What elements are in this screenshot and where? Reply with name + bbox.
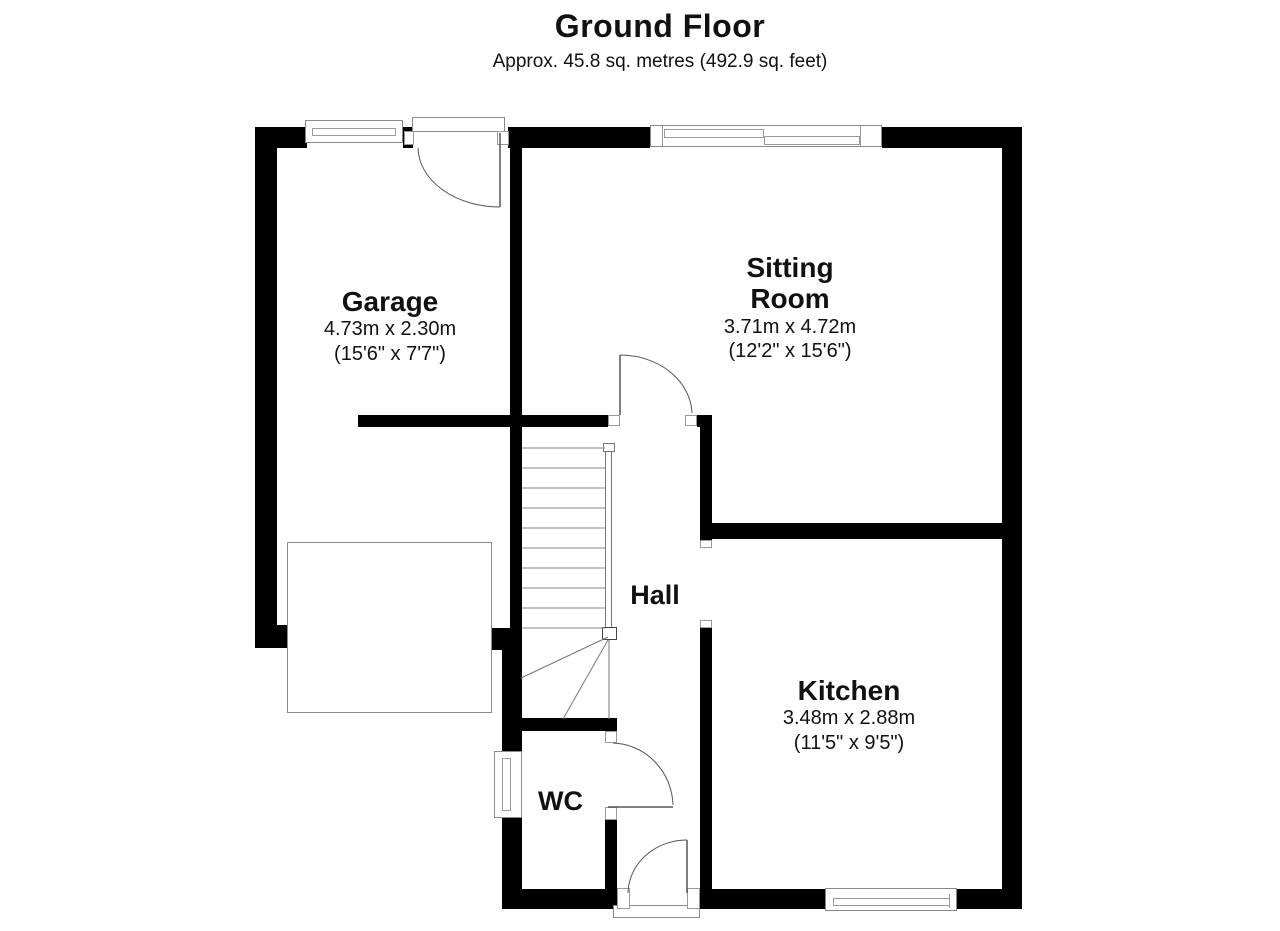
stair-treads	[522, 448, 605, 628]
door-arc-wc	[613, 743, 673, 805]
sitting-room-name-line2: Room	[690, 283, 890, 314]
floorplan-canvas: Ground Floor Approx. 45.8 sq. metres (49…	[0, 0, 1280, 931]
kitchen-name: Kitchen	[749, 675, 949, 706]
door-arc-front	[628, 840, 687, 893]
door-arc-garage-entry	[418, 148, 500, 207]
garage-dim-metric: 4.73m x 2.30m	[280, 317, 500, 341]
stair-winder-lines	[521, 637, 609, 719]
label-sitting-room: Sitting Room 3.71m x 4.72m (12'2" x 15'6…	[690, 252, 890, 364]
door-arc-sitting-room	[620, 355, 692, 413]
label-wc: WC	[518, 786, 603, 816]
garage-dim-imperial: (15'6" x 7'7")	[280, 342, 500, 366]
wc-name: WC	[518, 786, 603, 816]
label-hall: Hall	[605, 580, 705, 610]
sitting-room-dim-metric: 3.71m x 4.72m	[690, 315, 890, 339]
door-swing-and-stair-lines	[0, 0, 1280, 931]
kitchen-dim-metric: 3.48m x 2.88m	[749, 706, 949, 730]
label-kitchen: Kitchen 3.48m x 2.88m (11'5" x 9'5")	[749, 675, 949, 755]
label-garage: Garage 4.73m x 2.30m (15'6" x 7'7")	[280, 286, 500, 366]
garage-name: Garage	[280, 286, 500, 317]
hall-name: Hall	[605, 580, 705, 610]
kitchen-dim-imperial: (11'5" x 9'5")	[749, 731, 949, 755]
sitting-room-name-line1: Sitting	[690, 252, 890, 283]
sitting-room-dim-imperial: (12'2" x 15'6")	[690, 339, 890, 363]
